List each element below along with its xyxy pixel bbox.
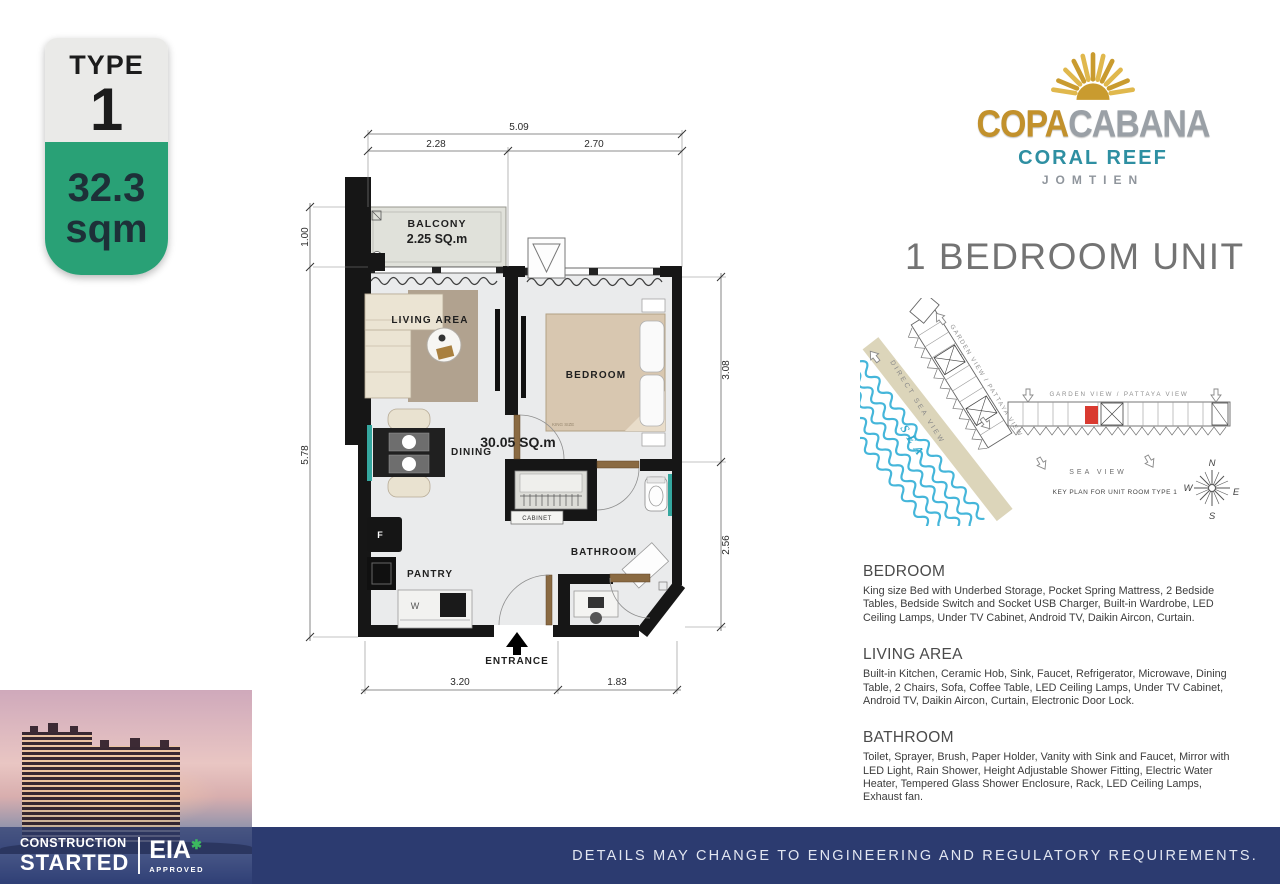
bathroom-door-lower <box>610 574 650 582</box>
dim-left-top: 1.00 <box>300 227 311 247</box>
tv-panel-bedroom <box>521 316 526 398</box>
dim-right-bottom: 2.56 <box>721 535 732 555</box>
type-number: 1 <box>45 81 168 138</box>
brand-location: JOMTIEN <box>968 173 1218 187</box>
type-label: TYPE <box>45 38 168 81</box>
pillow-top <box>640 321 664 372</box>
floorplan-svg: 5.09 2.28 2.70 1.00 5.78 3.08 2.56 3.20 … <box>293 104 748 704</box>
compass-s: S <box>1209 511 1216 522</box>
brand-name: COPACABANA <box>968 105 1218 143</box>
compass-w: W <box>1184 483 1194 494</box>
label-cabinet: CABINET <box>522 516 552 522</box>
dim-bottom-right: 1.83 <box>607 677 627 688</box>
highlighted-unit-marker <box>1085 406 1098 424</box>
entrance-door <box>546 575 552 625</box>
keyplan-caption: KEY PLAN FOR UNIT ROOM TYPE 1 <box>1053 489 1178 496</box>
label-bathroom: BATHROOM <box>571 547 637 558</box>
wardrobe <box>515 471 587 509</box>
label-bedroom: BEDROOM <box>566 370 627 381</box>
construction-line1: CONSTRUCTION <box>20 837 129 850</box>
dining-chair-top <box>388 409 430 430</box>
nightstand-top <box>642 299 665 312</box>
coffee-table <box>427 328 461 362</box>
tower-crown-3 <box>70 726 78 734</box>
spec-body-living-area: Built-in Kitchen, Ceramic Hob, Sink, Fau… <box>863 668 1243 708</box>
construction-status-left: CONSTRUCTION STARTED <box>20 837 129 875</box>
balcony-sliding-door <box>368 267 503 273</box>
label-washer: W <box>411 601 420 611</box>
spec-bedroom: BEDROOM King size Bed with Underbed Stor… <box>863 563 1243 625</box>
brand-name-silver: CABANA <box>1068 103 1209 146</box>
floorplan-brochure-page: TYPE 1 32.3 sqm <box>0 0 1280 884</box>
spec-body-bedroom: King size Bed with Underbed Storage, Poc… <box>863 585 1243 625</box>
keyplan-garden-view-horizontal: GARDEN VIEW / PATTAYA VIEW <box>1049 391 1188 398</box>
label-fridge: F <box>377 530 383 540</box>
spec-heading-bathroom: BATHROOM <box>863 729 1243 747</box>
label-entrance: ENTRANCE <box>485 656 549 667</box>
pillow-bottom <box>640 375 664 426</box>
spec-living-area: LIVING AREA Built-in Kitchen, Ceramic Ho… <box>863 646 1243 708</box>
area-unit: sqm <box>45 209 168 250</box>
toilet <box>645 477 667 511</box>
type-badge-top: TYPE 1 <box>45 38 168 142</box>
spec-sections: BEDROOM King size Bed with Underbed Stor… <box>863 563 1243 826</box>
washer-counter <box>398 590 472 628</box>
ac-shaft <box>528 238 565 278</box>
compass-e: E <box>1233 487 1240 498</box>
key-plan: GARDEN VIEW / PATTAYA VIEW DIRECT SEA VI… <box>860 298 1250 526</box>
floorplan-drawing: 5.09 2.28 2.70 1.00 5.78 3.08 2.56 3.20 … <box>293 104 748 704</box>
label-balcony-area: 2.25 SQ.m <box>407 232 467 246</box>
dim-top-right: 2.70 <box>584 139 604 150</box>
compass-icon: N S W E <box>1184 458 1240 522</box>
construction-status-right: EIA✱ APPROVED <box>149 838 204 874</box>
dim-left-bottom: 5.78 <box>300 445 311 465</box>
spec-bathroom: BATHROOM Toilet, Sprayer, Brush, Paper H… <box>863 729 1243 805</box>
area-badge: 32.3 sqm <box>45 142 168 275</box>
tower-crown-2 <box>48 723 58 733</box>
spec-heading-living-area: LIVING AREA <box>863 646 1243 664</box>
eia-approved-label: APPROVED <box>149 865 204 874</box>
kitchen-counter-edge <box>367 425 372 481</box>
construction-status: CONSTRUCTION STARTED EIA✱ APPROVED <box>20 837 204 875</box>
brand-name-gold: COPA <box>976 103 1068 146</box>
construction-photo: CONSTRUCTION STARTED EIA✱ APPROVED <box>0 690 252 884</box>
area-value: 32.3 <box>45 168 168 209</box>
tower-crown-6 <box>160 740 169 748</box>
sunburst-icon <box>1018 40 1168 102</box>
dim-bottom-left: 3.20 <box>450 677 470 688</box>
fridge <box>367 517 402 552</box>
footer-disclaimer: DETAILS MAY CHANGE TO ENGINEERING AND RE… <box>572 827 1258 884</box>
microwave <box>367 557 396 590</box>
eia-text: EIA <box>149 836 191 864</box>
tv-panel-living <box>495 309 500 391</box>
construction-line2: STARTED <box>20 852 129 874</box>
label-bed-size: KING SIZE <box>552 422 574 427</box>
label-pantry: PANTRY <box>407 569 453 580</box>
unit-title: 1 BEDROOM UNIT <box>905 236 1225 278</box>
brand-subtitle: CORAL REEF <box>968 147 1218 170</box>
building-right-wing <box>1008 402 1230 435</box>
label-balcony: BALCONY <box>408 218 467 230</box>
tower-crown-4 <box>100 740 109 748</box>
dim-top-total: 5.09 <box>509 122 529 133</box>
spec-body-bathroom: Toilet, Sprayer, Brush, Paper Holder, Va… <box>863 751 1243 805</box>
spec-heading-bedroom: BEDROOM <box>863 563 1243 581</box>
label-living-area: LIVING AREA <box>391 315 468 326</box>
bathroom-door-upper <box>597 461 639 468</box>
brand-logo: COPACABANA CORAL REEF JOMTIEN <box>968 40 1218 187</box>
bathroom-teal-wall <box>668 474 672 516</box>
eia-star-icon: ✱ <box>191 837 202 852</box>
nightstand-bottom <box>642 433 665 446</box>
type-badge: TYPE 1 32.3 sqm <box>45 38 168 275</box>
entrance-arrow-icon <box>506 632 528 655</box>
construction-divider <box>138 837 140 874</box>
dim-top-left: 2.28 <box>426 139 446 150</box>
label-unit-area: 30.05 SQ.m <box>480 434 556 450</box>
key-plan-svg: GARDEN VIEW / PATTAYA VIEW DIRECT SEA VI… <box>860 298 1250 526</box>
eia-label: EIA✱ <box>149 838 204 863</box>
tower-crown-5 <box>130 738 140 747</box>
compass-n: N <box>1209 458 1216 469</box>
dim-right-top: 3.08 <box>721 360 732 380</box>
dining-chair-bottom <box>388 476 430 497</box>
tower-crown-1 <box>30 726 38 734</box>
keyplan-sea-view-label: SEA VIEW <box>1069 469 1126 476</box>
